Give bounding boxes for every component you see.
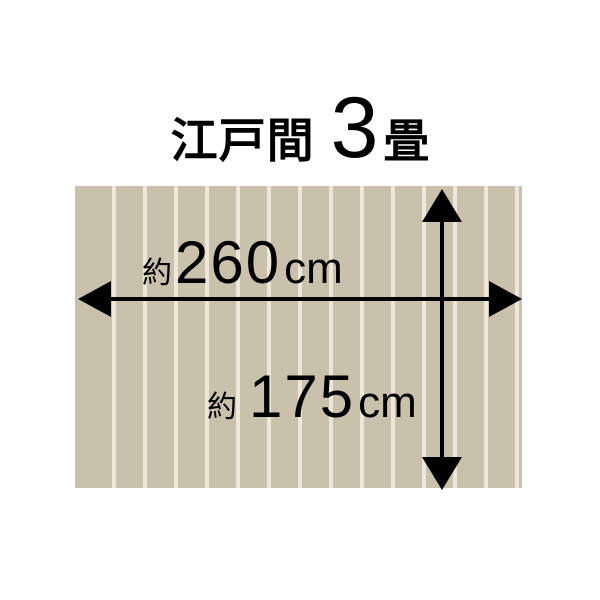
arrowhead-up-icon bbox=[422, 189, 462, 222]
width-value: 260 bbox=[175, 233, 281, 293]
title-size-name: 江戸間 bbox=[171, 117, 315, 164]
height-unit: cm bbox=[358, 381, 417, 425]
page-title: 江戸間 3 畳 bbox=[0, 85, 600, 175]
arrowhead-right-icon bbox=[489, 281, 522, 317]
height-value: 175 bbox=[249, 367, 355, 427]
width-approx-prefix: 約 bbox=[142, 259, 172, 289]
title-mat-unit: 畳 bbox=[383, 118, 429, 164]
height-approx-prefix: 約 bbox=[207, 393, 237, 423]
arrowhead-left-icon bbox=[78, 281, 111, 317]
product-size-diagram: 江戸間 3 畳 約 260 cm 約 175 cm bbox=[0, 0, 600, 600]
height-dimension-label: 約 175 cm bbox=[207, 367, 417, 427]
width-unit: cm bbox=[284, 247, 343, 291]
arrowhead-down-icon bbox=[422, 457, 462, 490]
title-mat-count: 3 bbox=[331, 85, 379, 171]
height-arrow-line bbox=[440, 200, 444, 478]
width-dimension-label: 約 260 cm bbox=[142, 233, 343, 293]
wood-plank-swatch bbox=[75, 186, 522, 488]
